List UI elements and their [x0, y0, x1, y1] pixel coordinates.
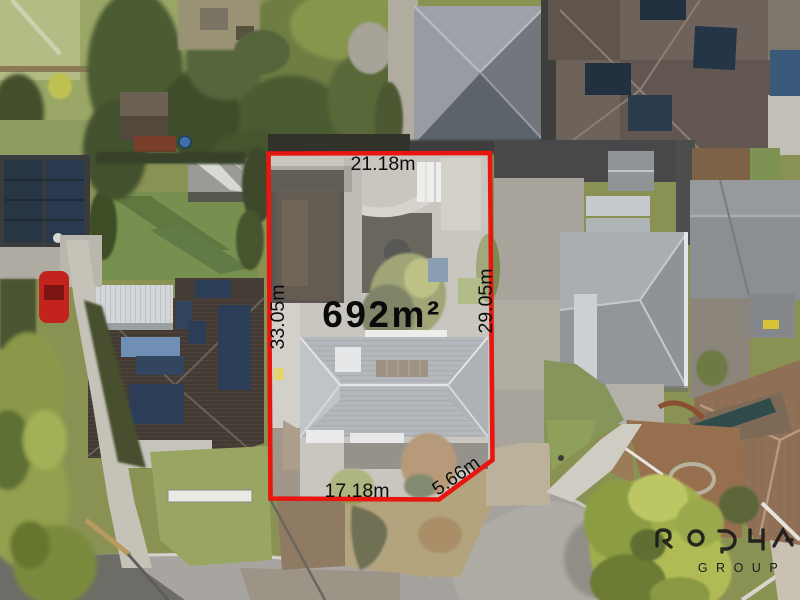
- svg-text:29.05m: 29.05m: [475, 268, 497, 333]
- svg-text:692m²: 692m²: [322, 294, 441, 335]
- svg-text:17.18m: 17.18m: [324, 480, 389, 502]
- svg-text:GROUP: GROUP: [698, 561, 786, 575]
- svg-text:21.18m: 21.18m: [350, 153, 415, 175]
- svg-text:33.05m: 33.05m: [267, 284, 289, 349]
